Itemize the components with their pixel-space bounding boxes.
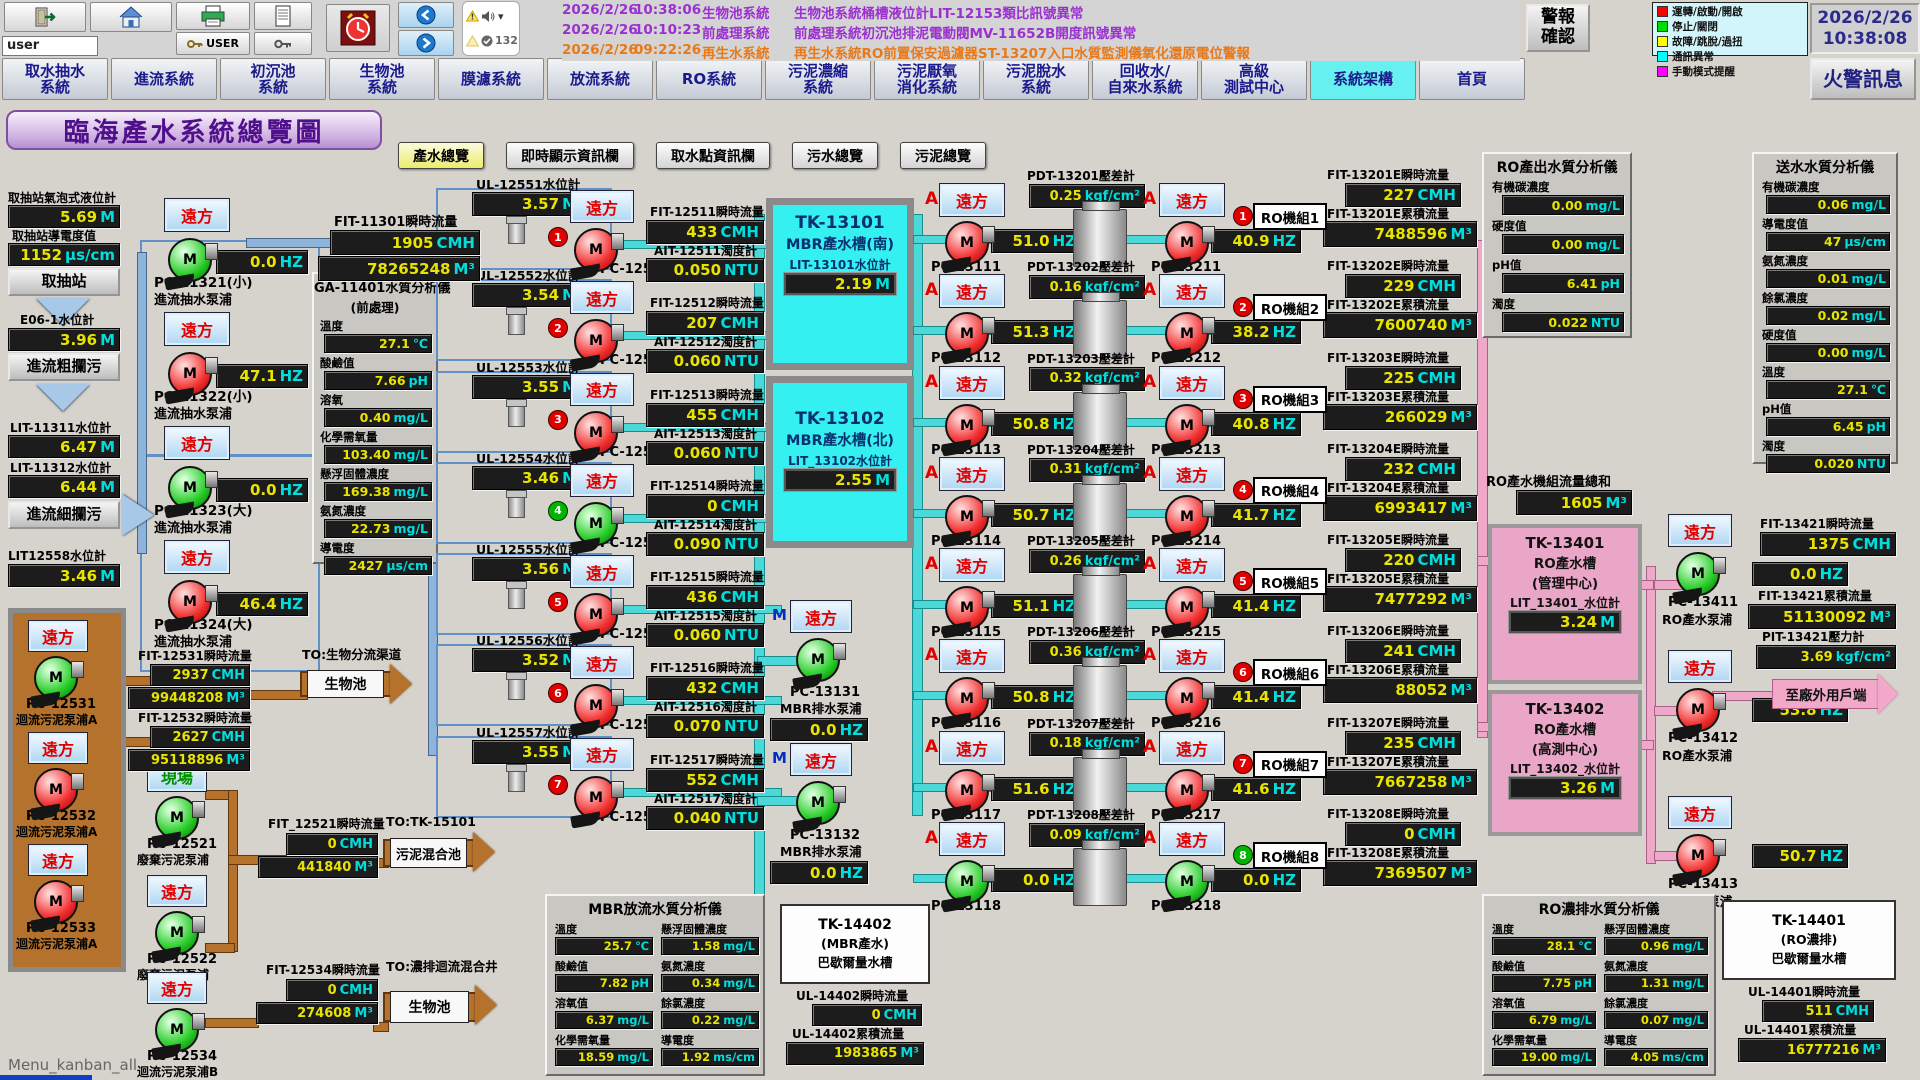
pump-icon[interactable]: M: [945, 860, 989, 904]
nav-back-button[interactable]: [398, 2, 454, 28]
remote-button[interactable]: 遠方: [1159, 183, 1225, 217]
pump-hz-display: 41.7HZ: [1211, 503, 1301, 527]
field-value-display: 0.34mg/L: [661, 974, 759, 992]
page-title: 臨海產水系統總覽圖: [6, 110, 382, 150]
remote-button[interactable]: 遠方: [164, 426, 230, 460]
ro-unit-box[interactable]: RO機組4: [1253, 477, 1327, 504]
remote-button[interactable]: 遠方: [1159, 457, 1225, 491]
legend-swatch: [1657, 66, 1668, 77]
field-value-display: 6.79mg/L: [1492, 1011, 1596, 1029]
auto-mode-label: A: [925, 372, 938, 392]
nav-tab[interactable]: 系統架構: [1310, 58, 1416, 100]
panel-subtitle: (前處理): [314, 297, 436, 317]
remote-button[interactable]: 遠方: [570, 738, 634, 771]
view-button[interactable]: 污泥總覽: [900, 142, 986, 169]
remote-button[interactable]: 遠方: [570, 555, 634, 588]
field-label: 餘氯濃度: [1762, 290, 1890, 306]
remote-button[interactable]: 遠方: [1668, 796, 1732, 829]
well-level-label: UL-12554水位計: [476, 452, 580, 466]
pump-unit: 遠方 M PC-12532 迴流污泥泵浦A: [26, 732, 130, 844]
field-value-display: 0.00mg/L: [1766, 343, 1890, 362]
ro-total-label: RO產水機組流量總和: [1486, 476, 1611, 490]
ro-unit-box[interactable]: RO機組1: [1253, 203, 1327, 230]
ro-train-row: A 遠方 M PC-13111 51.0HZ PDT-13201壓差計 0.25…: [925, 173, 1485, 264]
field-label: 導電度值: [1762, 216, 1890, 232]
analyzer-field: 溫度 28.1℃: [1492, 921, 1596, 955]
nav-tab[interactable]: 生物池 系統: [329, 58, 435, 100]
fit12534-label: FIT-12534瞬時流量: [266, 964, 380, 977]
pump-hz-display: 51.0HZ: [991, 229, 1081, 253]
ro-unit-box[interactable]: RO機組7: [1253, 751, 1327, 778]
speaker-icon: [481, 10, 496, 23]
well-level-label: UL-12557水位計: [476, 726, 580, 740]
pump-icon[interactable]: M: [574, 776, 618, 820]
remote-button[interactable]: 遠方: [939, 366, 1005, 400]
bio-arrow1-to-label: TO:生物分流渠道: [302, 648, 401, 662]
nav-tab[interactable]: 進流系統: [111, 58, 217, 100]
ait-label: AIT-12517濁度計: [654, 793, 757, 806]
pump-desc: 迴流污泥泵浦B: [137, 1066, 218, 1079]
analyzer-field: 酸鹼值 7.75pH: [1492, 958, 1596, 992]
toolbar: user USER ! ▾: [0, 0, 558, 57]
nav-tab[interactable]: RO系統: [656, 58, 762, 100]
filter-vessel: [1073, 574, 1127, 632]
analyzer-field: pH值 6.41pH: [1492, 257, 1624, 293]
pump-hz-display: 41.6HZ: [1211, 777, 1301, 801]
field-label: 酸鹼值: [1492, 958, 1596, 974]
flow-down-arrow: [36, 384, 90, 411]
pump-icon[interactable]: M: [574, 502, 618, 546]
fit-cum-label: FIT-13203E累積流量: [1327, 391, 1449, 404]
pump-hz-display: 0.0HZ: [216, 478, 308, 502]
pump-icon[interactable]: M: [574, 228, 618, 272]
fit-inst-display: 232CMH: [1345, 457, 1461, 481]
arrow-tag: 污泥混合池: [390, 838, 467, 868]
fit-cum-label: FIT-13205E累積流量: [1327, 573, 1449, 586]
fit-display: 0CMH: [646, 494, 764, 518]
nav-tab[interactable]: 膜濾系統: [438, 58, 544, 100]
pump-icon[interactable]: M: [796, 781, 840, 825]
field-label: 化學需氧量: [555, 1032, 653, 1048]
pump-desc: RO產水泵浦: [1662, 613, 1732, 627]
intake-station-button[interactable]: 取抽站: [8, 268, 120, 296]
nav-tab[interactable]: 污泥脫水 系統: [983, 58, 1089, 100]
bubble-level-label: 取抽站氣泡式液位計: [8, 192, 116, 205]
fit-cum-label: FIT-13202E累積流量: [1327, 299, 1449, 312]
well-number-badge: 7: [548, 775, 568, 795]
auto-mode-label: A: [925, 189, 938, 209]
view-buttons: 產水總覽 即時顯示資訊欄 取水點資訊欄 污水總覽 污泥總覽: [398, 142, 1138, 170]
ait-display: 0.070NTU: [646, 714, 764, 738]
nav-tab[interactable]: 污泥厭氧 消化系統: [874, 58, 980, 100]
train-number-badge: 5: [1233, 571, 1253, 591]
field-value-display: 19.00mg/L: [1492, 1048, 1596, 1066]
user-key-button[interactable]: USER: [176, 32, 250, 55]
arrow-head: [390, 664, 412, 704]
password-button[interactable]: [254, 32, 312, 55]
pump-hz-display: 40.8HZ: [1211, 412, 1301, 436]
alarm-row[interactable]: 2026/2/26 10:38:06 生物池系統 生物池系統桶槽液位計LIT-1…: [562, 2, 1520, 22]
box-name: TK-14401: [1772, 913, 1846, 929]
view-button[interactable]: 取水點資訊欄: [656, 142, 770, 169]
remote-button[interactable]: 遠方: [939, 457, 1005, 491]
ro-train-rows: A 遠方 M PC-13111 51.0HZ PDT-13201壓差計 0.25…: [925, 173, 1485, 903]
circle-arrow-right-icon: [416, 33, 436, 53]
box-line3: 巴歇爾量水槽: [1771, 948, 1846, 967]
alarm-list[interactable]: 2026/2/26 10:38:06 生物池系統 生物池系統桶槽液位計LIT-1…: [562, 0, 1520, 61]
remote-button[interactable]: 遠方: [939, 183, 1005, 217]
fit-inst-label: FIT-13205E瞬時流量: [1327, 534, 1449, 547]
logout-button[interactable]: [4, 2, 86, 32]
flow-right-arrow: [122, 494, 154, 536]
auto-mode-label: A: [1143, 828, 1156, 848]
fire-alarm-button[interactable]: 火警訊息: [1810, 58, 1916, 100]
nav-tab[interactable]: 首頁: [1419, 58, 1525, 100]
inflow-pump-column: 遠方 M 0.0HZ PC-11321(小) 進流抽水泵浦 遠方 M 47.1H…: [152, 198, 312, 654]
pump-icon[interactable]: M: [1165, 495, 1209, 539]
field-label: 硬度值: [1762, 327, 1890, 343]
pump-icon[interactable]: M: [945, 677, 989, 721]
fit12531-flow-display: 2937CMH: [150, 664, 250, 686]
lit11312-display: 6.44M: [8, 475, 120, 498]
svg-text:!: !: [471, 13, 475, 22]
tank-name: TK-13101: [795, 213, 885, 233]
fit12531-total-display: 99448208M³: [128, 687, 250, 709]
legend-label: 故障/跳脫/過扭: [1672, 34, 1743, 49]
pump-icon[interactable]: M: [155, 796, 199, 840]
remote-button[interactable]: 遠方: [1159, 822, 1225, 856]
panel-fields: 有機碳濃度 0.06mg/L 導電度值 47μs/cm 氨氮濃度 0.01mg/…: [1754, 179, 1896, 473]
remote-button[interactable]: 遠方: [1159, 274, 1225, 308]
fit-inst-label: FIT-13208E瞬時流量: [1327, 808, 1449, 821]
analyzer-field: 有機碳濃度 0.06mg/L: [1762, 179, 1890, 214]
e06-level-label: E06-1水位計: [20, 314, 94, 327]
remote-button[interactable]: 遠方: [939, 274, 1005, 308]
remote-button[interactable]: 遠方: [939, 548, 1005, 582]
well-level-display: 3.55M: [472, 740, 582, 764]
ro-concentrate-analyzer-panel: RO濃排水質分析儀 溫度 28.1℃ 懸浮固體濃度 0.96mg/L 酸鹼值 7…: [1482, 894, 1716, 1076]
auto-mode-label: A: [1143, 645, 1156, 665]
pump-icon[interactable]: M: [155, 911, 199, 955]
remote-button[interactable]: 遠方: [939, 639, 1005, 673]
sludge-return-pumps: 遠方 M PC-12531 迴流污泥泵浦A 遠方 M PC-12532 迴流污泥…: [26, 620, 130, 956]
field-label: 溫度: [1762, 364, 1890, 380]
pdt-label: PDT-13201壓差計: [1027, 170, 1135, 183]
pump-icon[interactable]: M: [34, 656, 78, 700]
field-value-display: 6.37mg/L: [555, 1011, 653, 1029]
field-label: 懸浮固體濃度: [661, 921, 759, 937]
remote-button[interactable]: 遠方: [164, 540, 230, 574]
remote-button[interactable]: 遠方: [570, 646, 634, 679]
panel-fields: 溫度 28.1℃ 懸浮固體濃度 0.96mg/L 酸鹼值 7.75pH 氨氮濃度…: [1484, 920, 1714, 1068]
pump-icon[interactable]: M: [168, 466, 212, 510]
pump-icon[interactable]: M: [574, 319, 618, 363]
pump-hz-display: 47.1HZ: [216, 364, 308, 388]
pump-desc: RO產水泵浦: [1662, 749, 1732, 763]
remote-button[interactable]: 遠方: [790, 600, 852, 633]
view-button[interactable]: 即時顯示資訊欄: [506, 142, 634, 169]
level-transmitter-icon: [508, 496, 525, 518]
auto-mode-label: A: [925, 828, 938, 848]
filter-vessel: [1073, 848, 1127, 906]
pump-hz-display: 50.7HZ: [991, 503, 1081, 527]
panel-fields: 有機碳濃度 0.00mg/L 硬度值 0.00mg/L pH值 6.41pH 濁…: [1484, 179, 1630, 332]
home-button[interactable]: [90, 2, 172, 32]
tank-name: TK-13402: [1526, 700, 1605, 718]
legend-swatch: [1657, 21, 1668, 32]
legend-label: 手動模式提醒: [1672, 64, 1735, 79]
fit13421-inst-label: FIT-13421瞬時流量: [1760, 518, 1874, 531]
field-value-display: 169.38mg/L: [324, 482, 432, 501]
analyzer-field: 酸鹼值 7.66pH: [320, 355, 432, 390]
ro-train-row: A 遠方 M PC-13113 50.8HZ PDT-13203壓差計 0.32…: [925, 356, 1485, 447]
legend-item: 通訊異常: [1657, 49, 1803, 64]
nav-tab[interactable]: 污泥濃縮 系統: [765, 58, 871, 100]
panel-title: MBR放流水質分析儀: [547, 896, 763, 920]
fit-label: FIT-12516瞬時流量: [650, 662, 764, 675]
pump-icon[interactable]: M: [168, 352, 212, 396]
pump-hz-display: 0.0HZ: [770, 861, 868, 884]
fit11301-flow-display: 1905CMH: [330, 230, 480, 255]
level-transmitter-icon: [508, 587, 525, 609]
remote-button[interactable]: 遠方: [1159, 366, 1225, 400]
analyzer-field: 硬度值 0.00mg/L: [1492, 218, 1624, 254]
tank-level-label: LIT_13102水位計: [788, 452, 892, 469]
ro-unit-box[interactable]: RO機組5: [1253, 568, 1327, 595]
pump-icon[interactable]: M: [574, 411, 618, 455]
print-button[interactable]: [176, 2, 250, 30]
level-transmitter-icon: [508, 222, 525, 244]
pdt-label: PDT-13205壓差計: [1027, 535, 1135, 548]
remote-button[interactable]: 遠方: [939, 822, 1005, 856]
pump-icon[interactable]: M: [168, 238, 212, 282]
ro-unit-box[interactable]: RO機組6: [1253, 659, 1327, 686]
fit-label: FIT-12517瞬時流量: [650, 754, 764, 767]
field-value-display: 0.01mg/L: [1766, 269, 1890, 288]
pump-desc: 進流抽水泵浦: [154, 522, 232, 536]
remote-button[interactable]: 遠方: [28, 732, 88, 764]
pump-icon[interactable]: M: [34, 880, 78, 924]
panel-title: 送水水質分析儀: [1754, 154, 1896, 178]
ro-train-row: A 遠方 M PC-13116 50.8HZ PDT-13206壓差計 0.36…: [925, 629, 1485, 720]
field-value-display: 47μs/cm: [1766, 232, 1890, 251]
ro-unit-box[interactable]: RO機組3: [1253, 386, 1327, 413]
ul14401-cum-label: UL-14401累積流量: [1744, 1024, 1856, 1037]
remote-button[interactable]: 遠方: [790, 743, 852, 776]
user-field[interactable]: user: [2, 36, 98, 56]
tank-level-label: LIT_13401_水位計: [1510, 594, 1620, 611]
field-label: 懸浮固體濃度: [1604, 921, 1708, 937]
pump-icon[interactable]: M: [155, 1008, 199, 1052]
alarm-ack-button[interactable]: 警報 確認: [1526, 4, 1590, 52]
fit-inst-display: 220CMH: [1345, 548, 1461, 572]
remote-button[interactable]: 遠方: [1668, 514, 1732, 547]
tank-level-label: LIT-13101水位計: [789, 256, 890, 273]
legend-swatch: [1657, 6, 1668, 17]
nav-tab[interactable]: 初沉池 系統: [220, 58, 326, 100]
fit-cum-display: 6993417M³: [1323, 495, 1477, 521]
mbr-well-column: UL-12551水位計 3.57M 1 遠方 M PC-12511 FIT-12…: [450, 178, 785, 817]
legend-swatch: [1657, 51, 1668, 62]
remote-button[interactable]: 遠方: [570, 281, 634, 314]
remote-button[interactable]: 遠方: [147, 972, 207, 1004]
nav-tab[interactable]: 取水抽水 系統: [2, 58, 108, 100]
pump-unit: M 遠方 M PC-13131 MBR排水泵浦 0.0HZ: [770, 598, 870, 741]
field-label: 化學需氧量: [1492, 1032, 1596, 1048]
level-transmitter-icon: [508, 678, 525, 700]
field-label: 餘氯濃度: [1604, 995, 1708, 1011]
ro-out-analyzer-panel: RO產出水質分析儀 有機碳濃度 0.00mg/L 硬度值 0.00mg/L pH…: [1482, 152, 1632, 338]
ro-unit-box[interactable]: RO機組2: [1253, 294, 1327, 321]
filter-vessel: [1073, 209, 1127, 267]
ul14401-inst-label: UL-14401瞬時流量: [1748, 986, 1860, 999]
pump-unit: 遠方 M PC-12531 迴流污泥泵浦A: [26, 620, 130, 732]
tank-desc: (管理中心): [1532, 572, 1598, 592]
pump-icon[interactable]: M: [945, 312, 989, 356]
fit-inst-display: 225CMH: [1345, 366, 1461, 390]
dropdown-caret-icon: ▾: [498, 10, 504, 23]
ul14401-cum-display: 16777216M³: [1738, 1038, 1886, 1062]
field-label: pH值: [1762, 401, 1890, 417]
pump-icon[interactable]: M: [796, 638, 840, 682]
field-value-display: 6.41pH: [1502, 273, 1624, 293]
fit12521-label: FIT_12521瞬時流量: [268, 818, 385, 831]
screen-footer-label: Menu_kanban_all: [8, 1056, 137, 1074]
nav-tab[interactable]: 回收水/ 自來水系統: [1092, 58, 1198, 100]
tank-desc: RO產水槽: [1534, 718, 1596, 738]
pump-icon[interactable]: M: [574, 593, 618, 637]
fine-screen-button[interactable]: 進流細攔污: [8, 501, 120, 529]
pump-hz-display: 50.8HZ: [991, 412, 1081, 436]
pump-icon[interactable]: M: [1165, 769, 1209, 813]
field-value-display: 103.40mg/L: [324, 445, 432, 464]
well-number-badge: 3: [548, 410, 568, 430]
analyzer-field: 溫度 25.7℃: [555, 921, 653, 955]
pump-icon[interactable]: M: [34, 768, 78, 812]
nav-tab[interactable]: 高級 測試中心: [1201, 58, 1307, 100]
pump-desc: MBR排水泵浦: [780, 702, 862, 716]
analyzer-field: 化學需氧量 19.00mg/L: [1492, 1032, 1596, 1066]
ul14402-cum-display: 1983865M³: [786, 1042, 924, 1065]
alarm-time: 09:22:26: [634, 42, 702, 62]
nav-tab[interactable]: 放流系統: [547, 58, 653, 100]
view-button[interactable]: 產水總覽: [398, 142, 484, 169]
ro-train-row: A 遠方 M PC-13117 51.6HZ PDT-13207壓差計 0.18…: [925, 721, 1485, 812]
analyzer-field: 導電度值 47μs/cm: [1762, 216, 1890, 251]
field-value-display: 7.82pH: [555, 974, 653, 992]
field-value-display: 0.06mg/L: [1766, 195, 1890, 214]
pump-icon[interactable]: M: [1165, 677, 1209, 721]
field-value-display: 0.96mg/L: [1604, 937, 1708, 955]
field-label: 化學需氧量: [320, 429, 432, 445]
pump-icon[interactable]: M: [168, 580, 212, 624]
analyzer-field: 氨氮濃度 22.73mg/L: [320, 503, 432, 538]
field-label: 酸鹼值: [320, 355, 432, 371]
alarm-clock-button[interactable]: [326, 4, 390, 52]
well-level-label: UL-12556水位計: [476, 634, 580, 648]
remote-button[interactable]: 遠方: [28, 844, 88, 876]
nav-forward-button[interactable]: [398, 30, 454, 56]
pump-icon[interactable]: M: [1165, 221, 1209, 265]
pump-icon[interactable]: M: [1165, 860, 1209, 904]
field-label: 餘氯濃度: [661, 995, 759, 1011]
arrow-tag: 生物池: [390, 991, 469, 1023]
field-label: 氨氮濃度: [1604, 958, 1708, 974]
remote-button[interactable]: 遠方: [28, 620, 88, 652]
remote-button[interactable]: 遠方: [164, 312, 230, 346]
alarm-row[interactable]: 2026/2/26 09:22:26 再生水系統 再生水系統RO前置保安過濾器S…: [562, 42, 1520, 62]
pump-hz-display: 40.9HZ: [1211, 229, 1301, 253]
well-level-label: UL-12555水位計: [476, 543, 580, 557]
remote-button[interactable]: 遠方: [1159, 639, 1225, 673]
field-label: 濁度: [1762, 438, 1890, 454]
legend-item: 手動模式提醒: [1657, 64, 1803, 79]
mode-m-label: M: [772, 749, 787, 767]
pump-icon[interactable]: M: [1165, 404, 1209, 448]
field-value-display: 0.00mg/L: [1502, 195, 1624, 215]
pump-icon[interactable]: M: [1676, 834, 1720, 878]
remote-button[interactable]: 遠方: [1159, 548, 1225, 582]
coarse-screen-button[interactable]: 進流粗攔污: [8, 353, 120, 381]
train-number-badge: 6: [1233, 662, 1253, 682]
pump-icon[interactable]: M: [945, 769, 989, 813]
ack-check-icon: [481, 35, 493, 47]
mbr-well-row: UL-12553水位計 3.55M 3 遠方 M PC-12513 FIT-12…: [450, 361, 785, 452]
auto-mode-label: A: [1143, 737, 1156, 757]
fit-inst-label: FIT-13202E瞬時流量: [1327, 260, 1449, 273]
mode-m-label: M: [772, 606, 787, 624]
taskbar-fragment: [0, 1075, 92, 1080]
pump-unit: 遠方 M 0.0HZ PC-11323(大) 進流抽水泵浦: [152, 426, 312, 540]
pump-desc: 迴流污泥泵浦A: [16, 826, 97, 839]
e06-level-display: 3.96M: [8, 328, 120, 351]
remote-button[interactable]: 遠方: [570, 464, 634, 497]
ro-total-display: 1605M³: [1516, 490, 1632, 515]
remote-button[interactable]: 遠方: [1159, 731, 1225, 765]
ro-train-row: A 遠方 M PC-13115 51.1HZ PDT-13205壓差計 0.26…: [925, 538, 1485, 629]
remote-button[interactable]: 遠方: [939, 731, 1005, 765]
tk14401-box: TK-14401 (RO濃排) 巴歇爾量水槽: [1722, 900, 1896, 980]
ait-label: AIT-12516濁度計: [654, 701, 757, 714]
alarm-sound-panel[interactable]: ! ▾ 132: [462, 1, 520, 56]
pump-hz-display: 0.0HZ: [991, 868, 1081, 892]
pump-icon[interactable]: M: [1165, 586, 1209, 630]
remote-button[interactable]: 遠方: [570, 373, 634, 406]
remote-button[interactable]: 遠方: [164, 198, 230, 232]
report-button[interactable]: [254, 2, 312, 30]
mode-button[interactable]: 遠方: [147, 875, 207, 907]
pump-icon[interactable]: M: [945, 495, 989, 539]
pump-icon[interactable]: M: [1165, 312, 1209, 356]
ro-unit-box[interactable]: RO機組8: [1253, 842, 1327, 869]
fit-cum-label: FIT-13207E累積流量: [1327, 756, 1449, 769]
arrow-head: [473, 832, 495, 872]
alarm-row[interactable]: 2026/2/26 10:10:23 前處理系統 前處理系統初沉池排泥電動閥MV…: [562, 22, 1520, 42]
tank-name: TK-13401: [1526, 534, 1605, 552]
field-label: 溶氧值: [1492, 995, 1596, 1011]
mbr-well-row: UL-12551水位計 3.57M 1 遠方 M PC-12511 FIT-12…: [450, 178, 785, 269]
remote-button[interactable]: 遠方: [570, 190, 634, 223]
view-button[interactable]: 污水總覽: [792, 142, 878, 169]
pump-icon[interactable]: M: [1676, 552, 1720, 596]
pump-icon[interactable]: M: [945, 404, 989, 448]
remote-button[interactable]: 遠方: [1668, 650, 1732, 683]
pump-icon[interactable]: M: [1676, 688, 1720, 732]
field-value-display: 1.58mg/L: [661, 937, 759, 955]
pump-icon[interactable]: M: [945, 221, 989, 265]
box-line2: (MBR產水): [821, 933, 889, 952]
pump-icon[interactable]: M: [945, 586, 989, 630]
